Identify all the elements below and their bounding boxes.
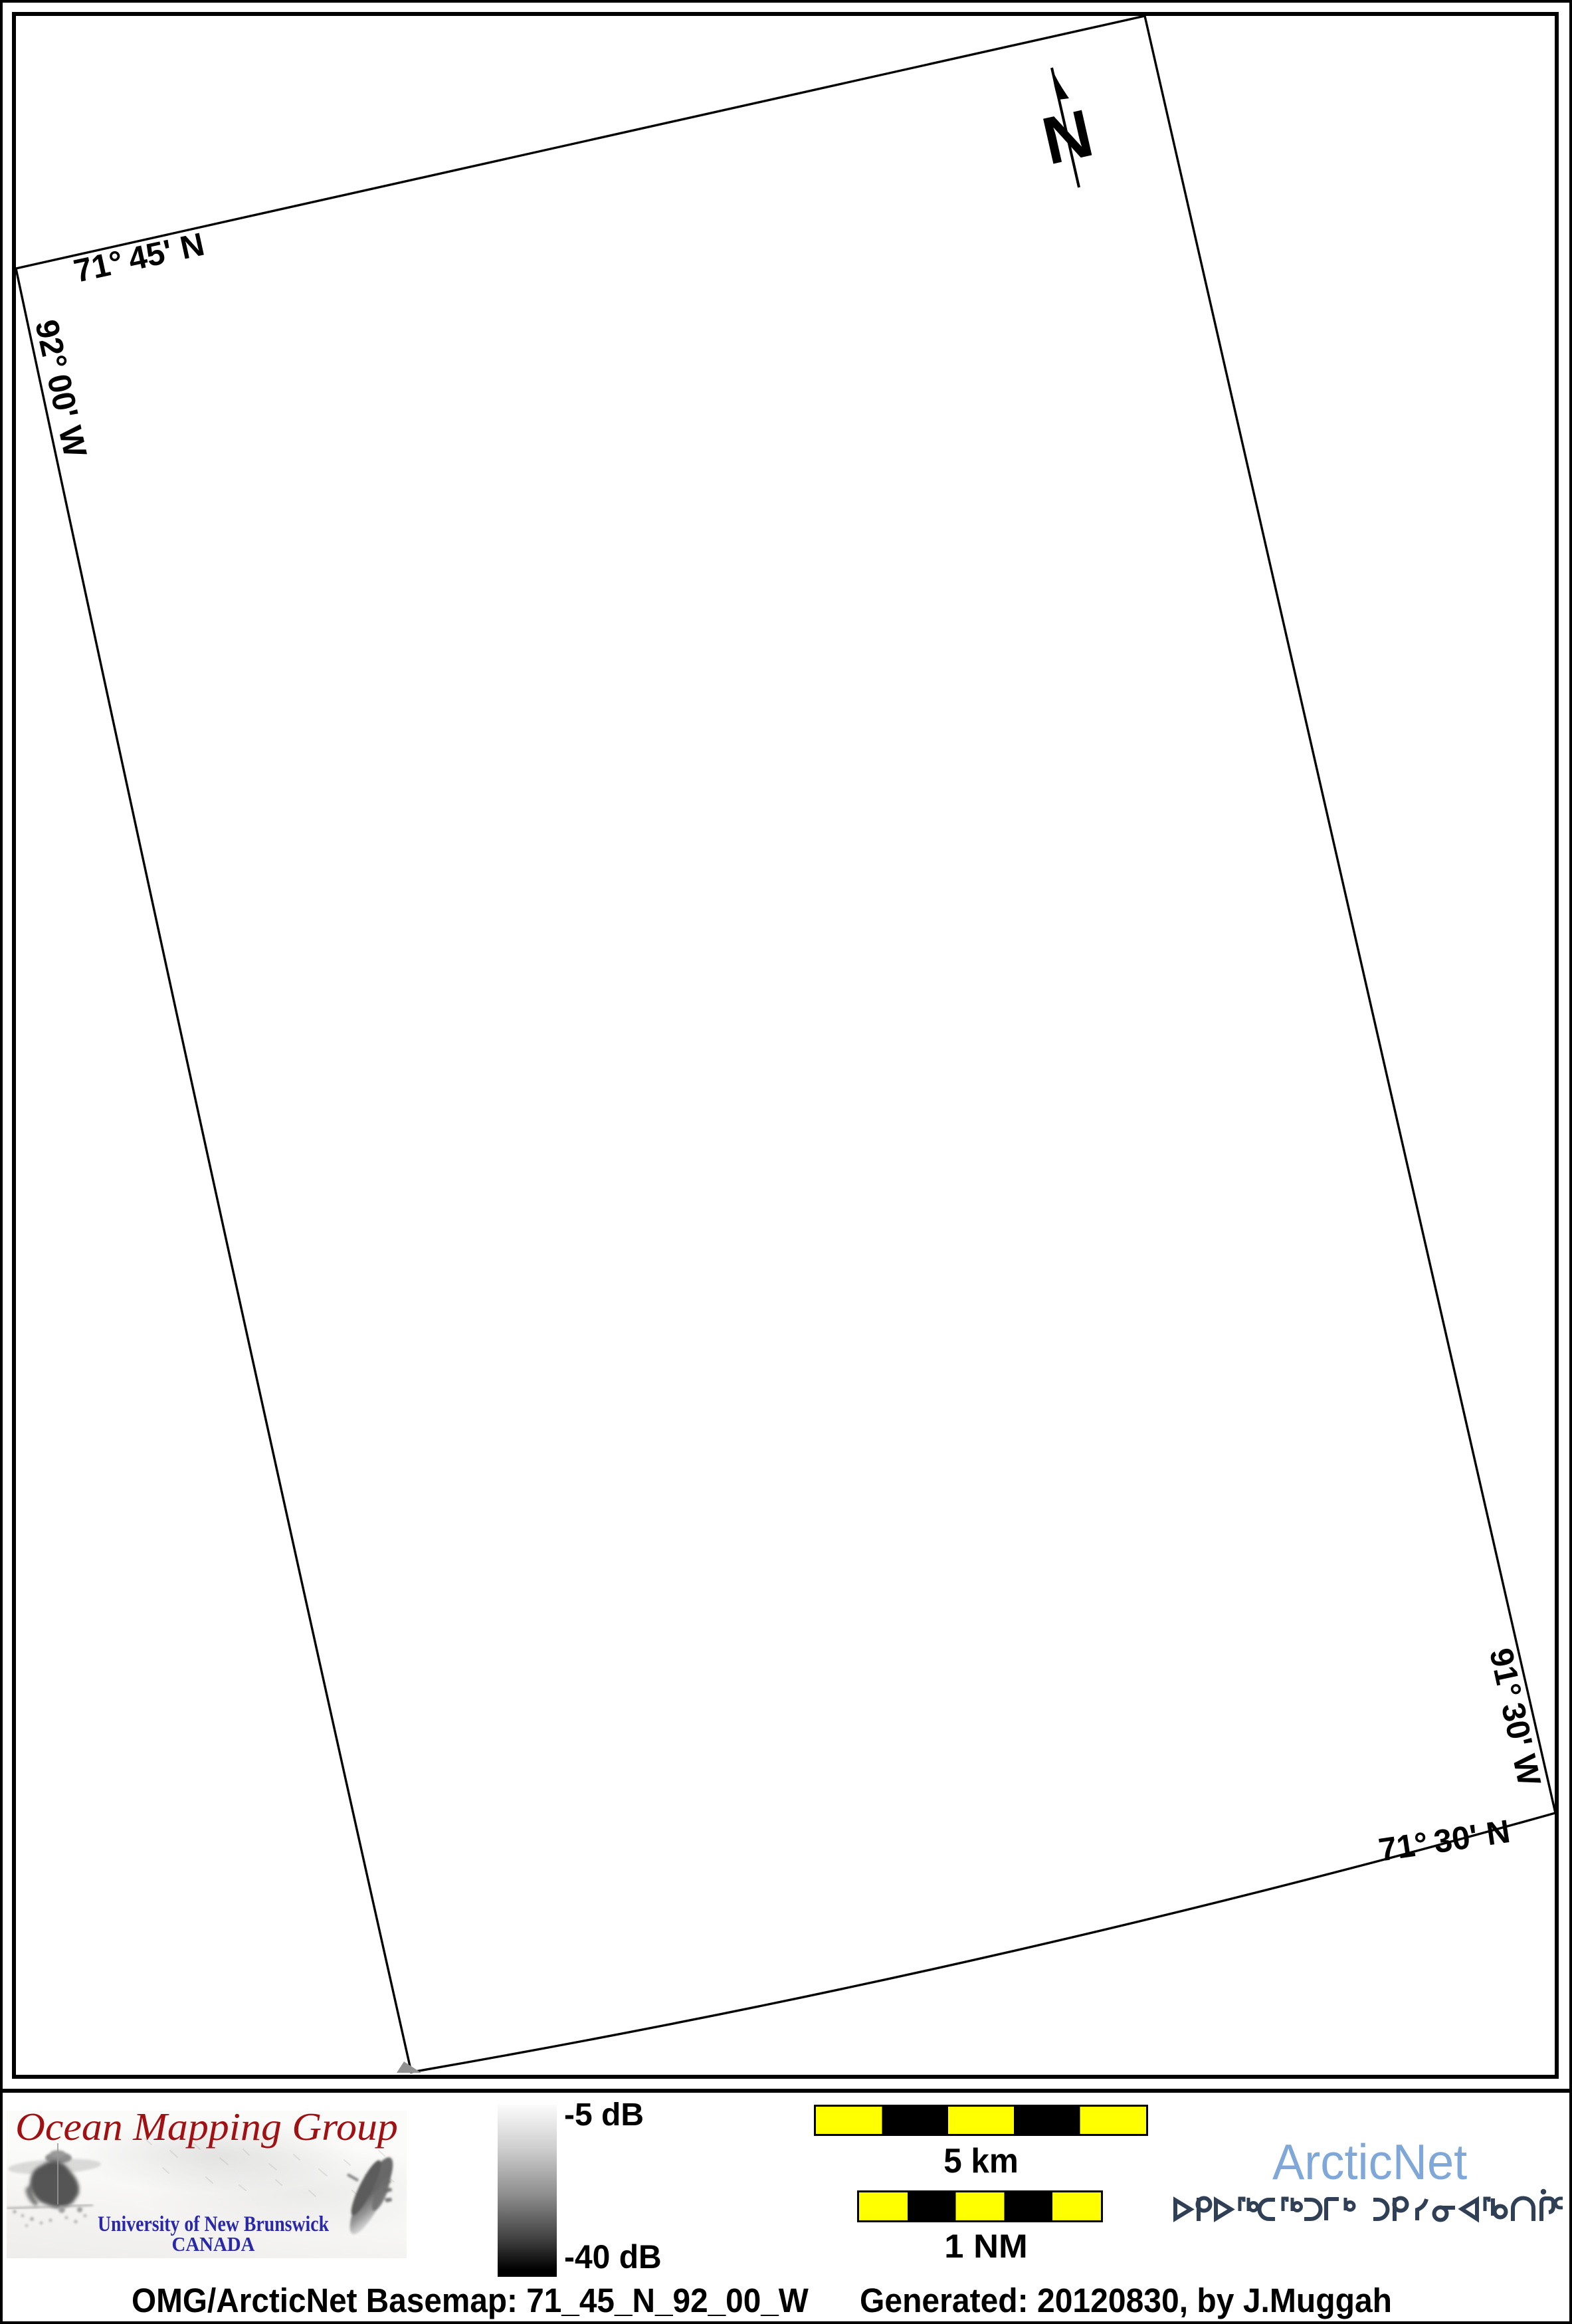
svg-text:N: N <box>1036 96 1100 179</box>
